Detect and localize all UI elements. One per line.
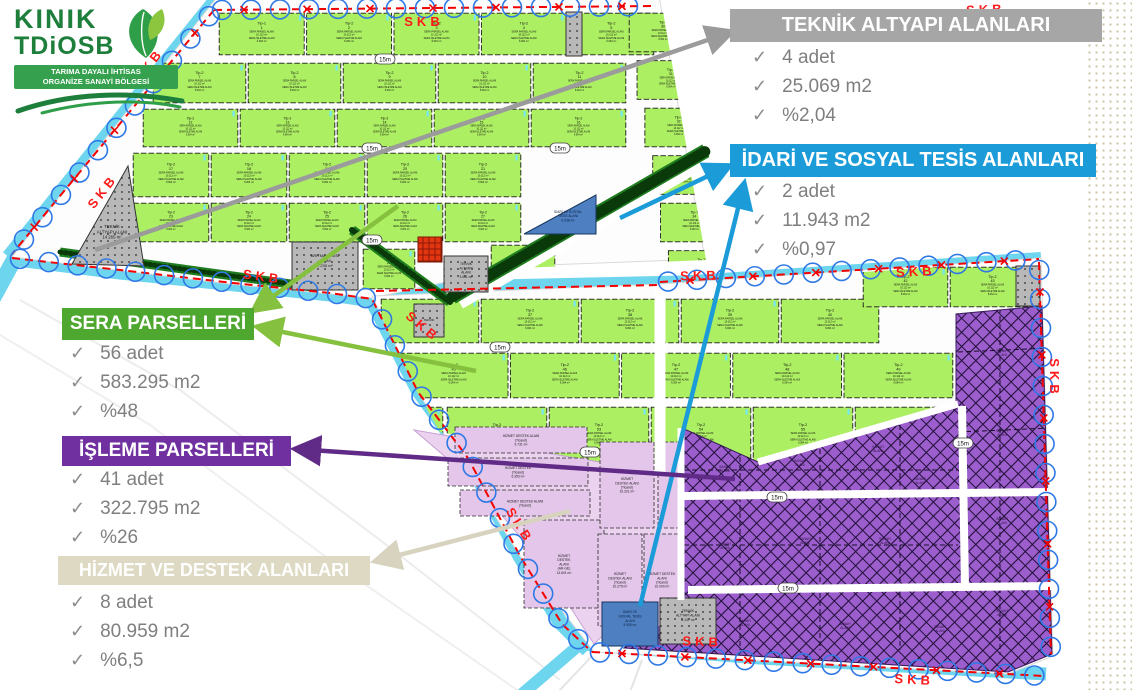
svg-text:15m: 15m xyxy=(584,450,596,456)
svg-text:SERA İŞLETME ALANI: SERA İŞLETME ALANI xyxy=(651,35,675,38)
svg-text:12: 12 xyxy=(189,120,193,124)
road-width-marker: 15m xyxy=(490,342,510,352)
road-width-marker: 15m xyxy=(767,492,787,502)
svg-text:6.064 m²: 6.064 m² xyxy=(674,133,683,136)
svg-text:15: 15 xyxy=(480,120,484,124)
svg-text:10.112 m²: 10.112 m² xyxy=(689,222,699,225)
svg-text:53: 53 xyxy=(597,427,601,431)
svg-text:6.064 m²: 6.064 m² xyxy=(432,40,442,43)
svg-text:SERA PARSEL ALANI: SERA PARSEL ALANI xyxy=(472,219,495,222)
stat-item: ✓%48 xyxy=(70,401,200,423)
svg-text:SKB: SKB xyxy=(1047,358,1062,397)
svg-text:SERA İŞLETME ALANI: SERA İŞLETME ALANI xyxy=(659,83,683,86)
svg-text:SKB: SKB xyxy=(894,671,934,688)
svg-text:43: 43 xyxy=(990,279,994,283)
svg-text:6.064 m²: 6.064 m² xyxy=(380,133,389,136)
svg-text:15m: 15m xyxy=(366,238,378,244)
svg-text:Tip-2: Tip-2 xyxy=(626,308,635,312)
svg-text:SERA PARSEL ALANI: SERA PARSEL ALANI xyxy=(179,125,202,128)
svg-text:ALANI: ALANI xyxy=(795,463,805,467)
sera-parcel: Tip-22SERA PARSEL ALANI10.112 m²SERA İŞL… xyxy=(307,13,392,55)
hizmet-destek-parcel: HİZMET DESTEK ALANI(Ticaret)9.731 m² xyxy=(455,427,587,453)
svg-text:Tip-2: Tip-2 xyxy=(672,363,681,367)
callout-sera-parselleri-title: SERA PARSELLERİ xyxy=(62,308,254,340)
svg-text:ALANI: ALANI xyxy=(997,433,1007,437)
svg-text:13: 13 xyxy=(286,120,290,124)
svg-text:Tip-2: Tip-2 xyxy=(493,423,502,427)
svg-text:6.064 m²: 6.064 m² xyxy=(166,181,176,184)
svg-text:6.064 m²: 6.064 m² xyxy=(519,40,529,43)
sera-parcel: Tip-11SERA PARSEL ALANI10.112 m²SERA İŞL… xyxy=(219,13,304,55)
svg-text:SERA İŞLETME ALANI: SERA İŞLETME ALANI xyxy=(315,225,339,228)
svg-text:ALANI: ALANI xyxy=(997,613,1007,617)
svg-text:6.064 m²: 6.064 m² xyxy=(671,382,681,385)
svg-text:9.731 m²: 9.731 m² xyxy=(514,443,528,447)
svg-text:6.064 m²: 6.064 m² xyxy=(477,133,486,136)
svg-text:SERA PARSEL ALANI: SERA PARSEL ALANI xyxy=(683,219,706,222)
svg-text:SERA PARSEL ALANI: SERA PARSEL ALANI xyxy=(652,29,675,32)
stat-item: ✓4 adet xyxy=(752,47,872,69)
stat-item: ✓%26 xyxy=(70,527,200,549)
svg-text:Tip-2: Tip-2 xyxy=(607,21,616,25)
check-icon: ✓ xyxy=(752,210,767,231)
stat-item: ✓11.943 m2 xyxy=(752,210,870,232)
road-width-marker: 15m xyxy=(375,54,395,64)
teknik-altyapi-parcel xyxy=(1016,266,1040,306)
svg-text:ALANI: ALANI xyxy=(800,541,810,545)
stat-value: 56 adet xyxy=(100,343,163,365)
svg-text:10.112 m²: 10.112 m² xyxy=(674,127,684,130)
sera-parcel: Tip-220SERA PARSEL ALANI10.112 m²SERA İŞ… xyxy=(367,153,443,197)
stat-value: 8 adet xyxy=(100,592,153,614)
callout-hizmet-destek-title: HİZMET VE DESTEK ALANLARI xyxy=(58,556,370,585)
svg-text:6.137 m²: 6.137 m² xyxy=(681,618,695,622)
sera-parcel: Tip-210SERA PARSEL ALANI10.112 m²SERA İŞ… xyxy=(438,63,531,103)
sera-parcel: Tip-531SERA PARSEL ALANI10.112 m²SERA İŞ… xyxy=(637,61,705,100)
svg-text:TEKNİK: TEKNİK xyxy=(682,608,695,613)
svg-text:Tip-2: Tip-2 xyxy=(245,162,254,166)
sera-parcel: Tip-224SERA PARSEL ALANI10.112 m²SERA İŞ… xyxy=(211,203,287,242)
road-width-marker: 15m xyxy=(362,235,382,245)
check-icon: ✓ xyxy=(752,47,767,68)
sera-parcel: Tip-28SERA PARSEL ALANI10.112 m²SERA İŞL… xyxy=(248,63,341,103)
check-icon: ✓ xyxy=(70,621,85,642)
stat-item: ✓8 adet xyxy=(70,592,190,614)
stat-value: 41 adet xyxy=(100,469,163,491)
svg-text:4: 4 xyxy=(523,26,525,30)
svg-text:ALANI: ALANI xyxy=(740,623,750,627)
stat-item: ✓322.795 m2 xyxy=(70,498,200,520)
svg-text:6.064 m²: 6.064 m² xyxy=(690,228,699,231)
logo-line2: TDiOSB xyxy=(14,34,114,59)
slide: Tip-11SERA PARSEL ALANI10.112 m²SERA İŞL… xyxy=(0,0,1138,690)
svg-text:SERA PARSEL ALANI: SERA PARSEL ALANI xyxy=(567,125,590,128)
stat-value: 25.069 m2 xyxy=(782,76,872,98)
svg-text:ALTYAPI ALANI: ALTYAPI ALANI xyxy=(97,229,127,234)
stat-item: ✓%0,97 xyxy=(752,239,870,261)
svg-text:ALANI: ALANI xyxy=(720,546,730,550)
svg-text:ALANI: ALANI xyxy=(625,619,635,623)
svg-text:44: 44 xyxy=(422,427,426,431)
stat-value: 4 adet xyxy=(782,47,835,69)
svg-text:SERA PARSEL ALANI: SERA PARSEL ALANI xyxy=(373,125,396,128)
svg-text:SERA PARSEL ALANI: SERA PARSEL ALANI xyxy=(659,77,682,80)
svg-text:6.064 m²: 6.064 m² xyxy=(666,86,675,89)
svg-text:6.064 m²: 6.064 m² xyxy=(385,89,395,92)
svg-text:ALTYAPI ALANI: ALTYAPI ALANI xyxy=(676,614,700,618)
svg-text:Tip-2: Tip-2 xyxy=(595,423,604,427)
svg-text:15m: 15m xyxy=(782,586,794,592)
svg-text:Tip-2: Tip-2 xyxy=(526,308,535,312)
check-icon: ✓ xyxy=(70,372,85,393)
stat-value: 2 adet xyxy=(782,181,835,203)
callout-sera-parselleri-items: ✓56 adet ✓583.295 m2 ✓%48 xyxy=(70,343,200,423)
svg-text:Tip-2: Tip-2 xyxy=(345,21,354,25)
logo-line1: KINIK xyxy=(14,6,114,33)
svg-text:Tip-2: Tip-2 xyxy=(894,363,903,367)
svg-text:6.064 m²: 6.064 m² xyxy=(384,275,394,278)
svg-text:32: 32 xyxy=(677,120,681,124)
svg-text:11: 11 xyxy=(578,75,582,79)
road-width-marker: 15m xyxy=(580,447,600,457)
svg-text:(Ticaret): (Ticaret) xyxy=(519,504,531,508)
svg-text:46: 46 xyxy=(563,367,567,371)
svg-text:10.112 m²: 10.112 m² xyxy=(244,222,254,225)
sera-parcel: Tip-632SERA PARSEL ALANI10.112 m²SERA İŞ… xyxy=(645,108,713,147)
sera-parcel: Tip-248SERA PARSEL ALANI10.112 m²SERA İŞ… xyxy=(733,353,842,398)
svg-text:6.064 m²: 6.064 m² xyxy=(257,40,267,43)
leaf-icon xyxy=(116,6,168,62)
svg-text:6.064 m²: 6.064 m² xyxy=(449,382,459,385)
stat-value: %48 xyxy=(100,401,138,423)
svg-text:SERA İŞLETME ALANI: SERA İŞLETME ALANI xyxy=(237,225,261,228)
svg-text:6.064 m²: 6.064 m² xyxy=(658,38,667,41)
svg-text:54: 54 xyxy=(699,427,703,431)
stat-item: ✓%6,5 xyxy=(70,650,190,672)
svg-text:10.112 m²: 10.112 m² xyxy=(322,222,332,225)
svg-text:SKB: SKB xyxy=(404,14,443,29)
stat-value: 11.943 m2 xyxy=(782,210,870,232)
svg-text:Tip-2: Tip-2 xyxy=(799,423,808,427)
swoosh-decoration xyxy=(14,89,186,115)
callout-isleme-parselleri-items: ✓41 adet ✓322.795 m2 ✓%26 xyxy=(70,469,200,549)
svg-text:SKB: SKB xyxy=(682,633,722,649)
svg-text:TEKNİK: TEKNİK xyxy=(460,261,473,266)
svg-text:26: 26 xyxy=(403,215,407,219)
svg-text:SERA PARSEL ALANI: SERA PARSEL ALANI xyxy=(316,219,339,222)
teknik-altyapi-parcel: TEKNİKALTYAPIALANI3.001 m² xyxy=(444,256,488,292)
svg-text:Tip-2: Tip-2 xyxy=(697,423,706,427)
svg-text:ALANI: ALANI xyxy=(880,541,890,545)
svg-text:Tip-2: Tip-2 xyxy=(401,162,410,166)
road-width-marker: 15m xyxy=(550,143,570,153)
stat-item: ✓583.295 m2 xyxy=(70,372,200,394)
svg-text:Tip-2: Tip-2 xyxy=(726,308,735,312)
svg-text:6.064 m²: 6.064 m² xyxy=(625,327,635,330)
svg-text:34: 34 xyxy=(692,215,696,219)
svg-text:6.064 m²: 6.064 m² xyxy=(988,293,998,296)
svg-text:Tip-2: Tip-2 xyxy=(826,308,835,312)
dotted-edge-decoration xyxy=(1086,0,1132,690)
svg-text:5: 5 xyxy=(610,26,612,30)
svg-text:18: 18 xyxy=(247,167,251,171)
svg-text:10: 10 xyxy=(482,75,486,79)
logo-banner-line1: TARIMA DAYALI İHTİSAS xyxy=(17,67,175,77)
callout-teknik-altyapi-title: TEKNİK ALTYAPI ALANLARI xyxy=(730,9,1102,42)
svg-text:9: 9 xyxy=(388,75,390,79)
svg-text:5.905 m²: 5.905 m² xyxy=(623,623,637,627)
sera-parcel: Tip-221SERA PARSEL ALANI10.112 m²SERA İŞ… xyxy=(445,153,521,197)
svg-text:SERA İŞLETME ALANI: SERA İŞLETME ALANI xyxy=(393,225,417,228)
svg-text:İDARİ VE: İDARİ VE xyxy=(623,609,638,614)
check-icon: ✓ xyxy=(752,239,767,260)
svg-text:1: 1 xyxy=(261,26,263,30)
callout-hizmet-destek-items: ✓8 adet ✓80.959 m2 ✓%6,5 xyxy=(70,592,190,672)
svg-text:10.321 m²: 10.321 m² xyxy=(620,490,636,494)
svg-text:Tip-2: Tip-2 xyxy=(167,162,176,166)
check-icon: ✓ xyxy=(70,498,85,519)
svg-text:10.112 m²: 10.112 m² xyxy=(186,127,196,130)
svg-text:15m: 15m xyxy=(494,345,506,351)
svg-text:16: 16 xyxy=(577,120,581,124)
svg-text:Tip-2: Tip-2 xyxy=(520,21,529,25)
sera-parcel: Tip-227SERA PARSEL ALANI10.112 m²SERA İŞ… xyxy=(445,203,521,242)
svg-text:SERA PARSEL ALANI: SERA PARSEL ALANI xyxy=(667,124,690,127)
svg-text:SERA İŞLETME ALANI: SERA İŞLETME ALANI xyxy=(470,131,494,134)
red-parcel xyxy=(418,237,442,262)
callout-isleme-parselleri-title: İŞLEME PARSELLERİ xyxy=(62,436,291,466)
callout-idari-sosyal-items: ✓2 adet ✓11.943 m2 ✓%0,97 xyxy=(752,181,870,261)
svg-text:6.064 m²: 6.064 m² xyxy=(574,133,583,136)
svg-text:Tip-2: Tip-2 xyxy=(561,363,570,367)
svg-text:6.064 m²: 6.064 m² xyxy=(478,228,487,231)
svg-text:6.064 m²: 6.064 m² xyxy=(782,382,792,385)
sera-parcel: Tip-29SERA PARSEL ALANI10.112 m²SERA İŞL… xyxy=(343,63,436,103)
svg-text:35: 35 xyxy=(700,262,704,266)
svg-text:20: 20 xyxy=(403,167,407,171)
check-icon: ✓ xyxy=(70,592,85,613)
svg-text:10.112 m²: 10.112 m² xyxy=(658,32,668,35)
svg-text:14: 14 xyxy=(383,120,387,124)
svg-text:10.275 m²: 10.275 m² xyxy=(613,585,629,589)
stat-item: ✓2 adet xyxy=(752,181,870,203)
sera-parcel: Tip-247SERA PARSEL ALANI10.112 m²SERA İŞ… xyxy=(622,353,731,398)
svg-text:10.112 m²: 10.112 m² xyxy=(380,127,390,130)
svg-text:6.064 m²: 6.064 m² xyxy=(901,293,911,296)
svg-text:6.064 m²: 6.064 m² xyxy=(525,327,535,330)
svg-text:6.064 m²: 6.064 m² xyxy=(825,327,835,330)
svg-text:48: 48 xyxy=(785,367,789,371)
svg-text:10.112 m²: 10.112 m² xyxy=(666,79,676,82)
svg-text:6.064 m²: 6.064 m² xyxy=(478,181,488,184)
svg-text:10.000 m²: 10.000 m² xyxy=(655,585,671,589)
check-icon: ✓ xyxy=(752,181,767,202)
svg-text:Tip-2: Tip-2 xyxy=(783,363,792,367)
svg-text:8: 8 xyxy=(293,75,295,79)
svg-text:6.064 m²: 6.064 m² xyxy=(322,181,332,184)
svg-text:47: 47 xyxy=(674,367,678,371)
stat-value: %6,5 xyxy=(100,650,143,672)
stat-value: 322.795 m2 xyxy=(100,498,200,520)
svg-text:6.064 m²: 6.064 m² xyxy=(575,89,585,92)
check-icon: ✓ xyxy=(70,650,85,671)
svg-text:ALANI: ALANI xyxy=(720,469,730,473)
sera-parcel: Tip-237SERA PARSEL ALANI10.112 m²SERA İŞ… xyxy=(481,299,579,343)
road-width-marker: 15m xyxy=(778,583,798,593)
svg-text:SERA İŞLETME ALANI: SERA İŞLETME ALANI xyxy=(567,131,591,134)
svg-text:6.064 m²: 6.064 m² xyxy=(166,228,175,231)
sera-parcel: Tip-246SERA PARSEL ALANI10.112 m²SERA İŞ… xyxy=(510,353,619,398)
svg-text:14.265 m²: 14.265 m² xyxy=(102,235,122,240)
svg-text:SERA İŞLETME ALANI: SERA İŞLETME ALANI xyxy=(373,131,397,134)
svg-text:Tip-13: Tip-13 xyxy=(419,422,430,426)
svg-text:6.064 m²: 6.064 m² xyxy=(893,382,903,385)
svg-text:6.064 m²: 6.064 m² xyxy=(283,133,292,136)
svg-text:10.112 m²: 10.112 m² xyxy=(477,127,487,130)
svg-text:ALANI: ALANI xyxy=(840,626,850,630)
check-icon: ✓ xyxy=(752,105,767,126)
svg-text:SERA İŞLETME ALANI: SERA İŞLETME ALANI xyxy=(682,225,706,228)
kinik-tdiosb-logo: KINIK TDiOSB TARIMA DAYALI İHTİSAS ORGAN… xyxy=(14,6,224,120)
svg-text:14.601 m²: 14.601 m² xyxy=(557,571,573,575)
svg-text:23: 23 xyxy=(169,215,173,219)
svg-text:39: 39 xyxy=(728,313,732,317)
svg-text:30: 30 xyxy=(661,25,665,29)
svg-text:ALANI: ALANI xyxy=(873,449,883,453)
svg-text:Tip-1: Tip-1 xyxy=(257,21,266,25)
check-icon: ✓ xyxy=(70,401,85,422)
check-icon: ✓ xyxy=(70,343,85,364)
svg-text:31: 31 xyxy=(669,72,673,76)
svg-text:21: 21 xyxy=(481,167,485,171)
svg-text:TEKNİK: TEKNİK xyxy=(104,224,120,229)
svg-text:ALANI: ALANI xyxy=(997,521,1007,525)
svg-text:6.064 m²: 6.064 m² xyxy=(606,40,616,43)
logo-wordmark: KINIK TDiOSB xyxy=(14,6,114,59)
hizmet-destek-parcel: HİZMETDESTEK ALANI(Ticaret)10.321 m² xyxy=(600,442,654,528)
svg-text:SKB: SKB xyxy=(896,263,936,280)
stat-value: 80.959 m2 xyxy=(100,621,190,643)
stat-item: ✓56 adet xyxy=(70,343,200,365)
check-icon: ✓ xyxy=(752,76,767,97)
svg-text:10.112 m²: 10.112 m² xyxy=(478,222,488,225)
svg-text:27: 27 xyxy=(481,215,485,219)
svg-text:49: 49 xyxy=(896,367,900,371)
svg-text:10.112 m²: 10.112 m² xyxy=(400,222,410,225)
idari-sosyal-parcel-south: İDARİ VESOSYAL TESİSALANI5.905 m² xyxy=(602,602,658,646)
svg-text:10.112 m²: 10.112 m² xyxy=(283,127,293,130)
svg-text:15m: 15m xyxy=(771,495,783,501)
svg-text:24: 24 xyxy=(247,215,251,219)
svg-text:6.064 m²: 6.064 m² xyxy=(560,382,570,385)
svg-text:42: 42 xyxy=(903,279,907,283)
stat-item: ✓41 adet xyxy=(70,469,200,491)
sera-parcel: Tip-217SERA PARSEL ALANI10.112 m²SERA İŞ… xyxy=(133,153,209,197)
svg-text:SERA İŞLETME ALANI: SERA İŞLETME ALANI xyxy=(276,131,300,134)
svg-text:3.001 m²: 3.001 m² xyxy=(459,275,473,279)
svg-text:6.353 m²: 6.353 m² xyxy=(511,475,525,479)
sera-parcel: Tip-249SERA PARSEL ALANI10.112 m²SERA İŞ… xyxy=(844,353,953,398)
check-icon: ✓ xyxy=(70,469,85,490)
check-icon: ✓ xyxy=(70,527,85,548)
svg-text:17: 17 xyxy=(169,167,173,171)
svg-text:55: 55 xyxy=(801,427,805,431)
svg-text:6.064 m²: 6.064 m² xyxy=(290,89,300,92)
svg-text:Tip-12: Tip-12 xyxy=(697,258,707,262)
svg-text:ALANI: ALANI xyxy=(915,481,925,485)
svg-text:40: 40 xyxy=(828,313,832,317)
sera-parcel: Tip-734SERA PARSEL ALANI10.112 m²SERA İŞ… xyxy=(661,203,729,242)
svg-text:ALANI: ALANI xyxy=(935,629,945,633)
svg-text:SERA PARSEL ALANI: SERA PARSEL ALANI xyxy=(470,125,493,128)
svg-text:SERA PARSEL ALANI: SERA PARSEL ALANI xyxy=(276,125,299,128)
svg-text:SOSYAL TESİS: SOSYAL TESİS xyxy=(618,613,642,618)
svg-text:SERA İŞLETME ALANI: SERA İŞLETME ALANI xyxy=(471,225,495,228)
stat-value: %0,97 xyxy=(782,239,836,261)
logo-banner: TARIMA DAYALI İHTİSAS ORGANİZE SANAYİ BÖ… xyxy=(14,65,178,89)
logo-banner-line2: ORGANİZE SANAYİ BÖLGESİ xyxy=(17,77,175,87)
svg-text:6.064 m²: 6.064 m² xyxy=(344,40,354,43)
stat-item: ✓80.959 m2 xyxy=(70,621,190,643)
svg-text:SERA İŞLETME ALANI: SERA İŞLETME ALANI xyxy=(667,130,691,133)
svg-text:SERA İŞLETME ALANI: SERA İŞLETME ALANI xyxy=(179,131,203,134)
stat-value: 583.295 m2 xyxy=(100,372,200,394)
svg-text:ALANI: ALANI xyxy=(997,353,1007,357)
svg-text:6.064 m²: 6.064 m² xyxy=(798,442,808,445)
svg-text:6.064 m²: 6.064 m² xyxy=(400,181,410,184)
svg-text:37: 37 xyxy=(528,313,532,317)
svg-text:6.064 m²: 6.064 m² xyxy=(322,228,331,231)
svg-text:SERA PARSEL ALANI: SERA PARSEL ALANI xyxy=(238,219,261,222)
stat-item: ✓%2,04 xyxy=(752,105,872,127)
svg-text:6.064 m²: 6.064 m² xyxy=(186,133,195,136)
sera-parcel: Tip-216SERA PARSEL ALANI10.112 m²SERA İŞ… xyxy=(531,109,626,147)
svg-text:15m: 15m xyxy=(379,57,391,63)
hizmet-destek-parcel: HİZMET DESTEK ALANI(Ticaret) xyxy=(460,490,590,516)
road-width-marker: 15m xyxy=(953,438,973,448)
svg-text:Tip-2: Tip-2 xyxy=(479,162,488,166)
svg-text:6.064 m²: 6.064 m² xyxy=(244,181,254,184)
svg-text:15m: 15m xyxy=(957,441,969,447)
stat-value: %26 xyxy=(100,527,138,549)
sera-parcel: Tip-239SERA PARSEL ALANI10.112 m²SERA İŞ… xyxy=(681,299,779,343)
teknik-altyapi-parcel xyxy=(566,12,582,56)
callout-idari-sosyal-title: İDARİ VE SOSYAL TESİS ALANLARI xyxy=(730,144,1096,177)
svg-text:SERA PARSEL ALANI: SERA PARSEL ALANI xyxy=(394,219,417,222)
svg-text:6.064 m²: 6.064 m² xyxy=(725,327,735,330)
stat-item: ✓25.069 m2 xyxy=(752,76,872,98)
svg-text:6.038 m²: 6.038 m² xyxy=(561,218,575,222)
sera-parcel: Tip-24SERA PARSEL ALANI10.112 m²SERA İŞL… xyxy=(481,13,566,55)
svg-text:6.064 m²: 6.064 m² xyxy=(480,89,490,92)
svg-text:10.112 m²: 10.112 m² xyxy=(574,127,584,130)
stat-value: %2,04 xyxy=(782,105,836,127)
svg-text:6.064 m²: 6.064 m² xyxy=(400,228,409,231)
svg-text:25: 25 xyxy=(325,215,329,219)
svg-text:2: 2 xyxy=(348,26,350,30)
svg-text:Tip-2: Tip-2 xyxy=(323,162,332,166)
svg-text:38: 38 xyxy=(628,313,632,317)
svg-text:15m: 15m xyxy=(554,146,566,152)
sera-parcel: Tip-213SERA PARSEL ALANI10.112 m²SERA İŞ… xyxy=(240,109,335,147)
callout-teknik-altyapi-items: ✓4 adet ✓25.069 m2 ✓%2,04 xyxy=(752,47,872,127)
svg-text:6.064 m²: 6.064 m² xyxy=(244,228,253,231)
svg-text:SKB: SKB xyxy=(680,268,720,284)
